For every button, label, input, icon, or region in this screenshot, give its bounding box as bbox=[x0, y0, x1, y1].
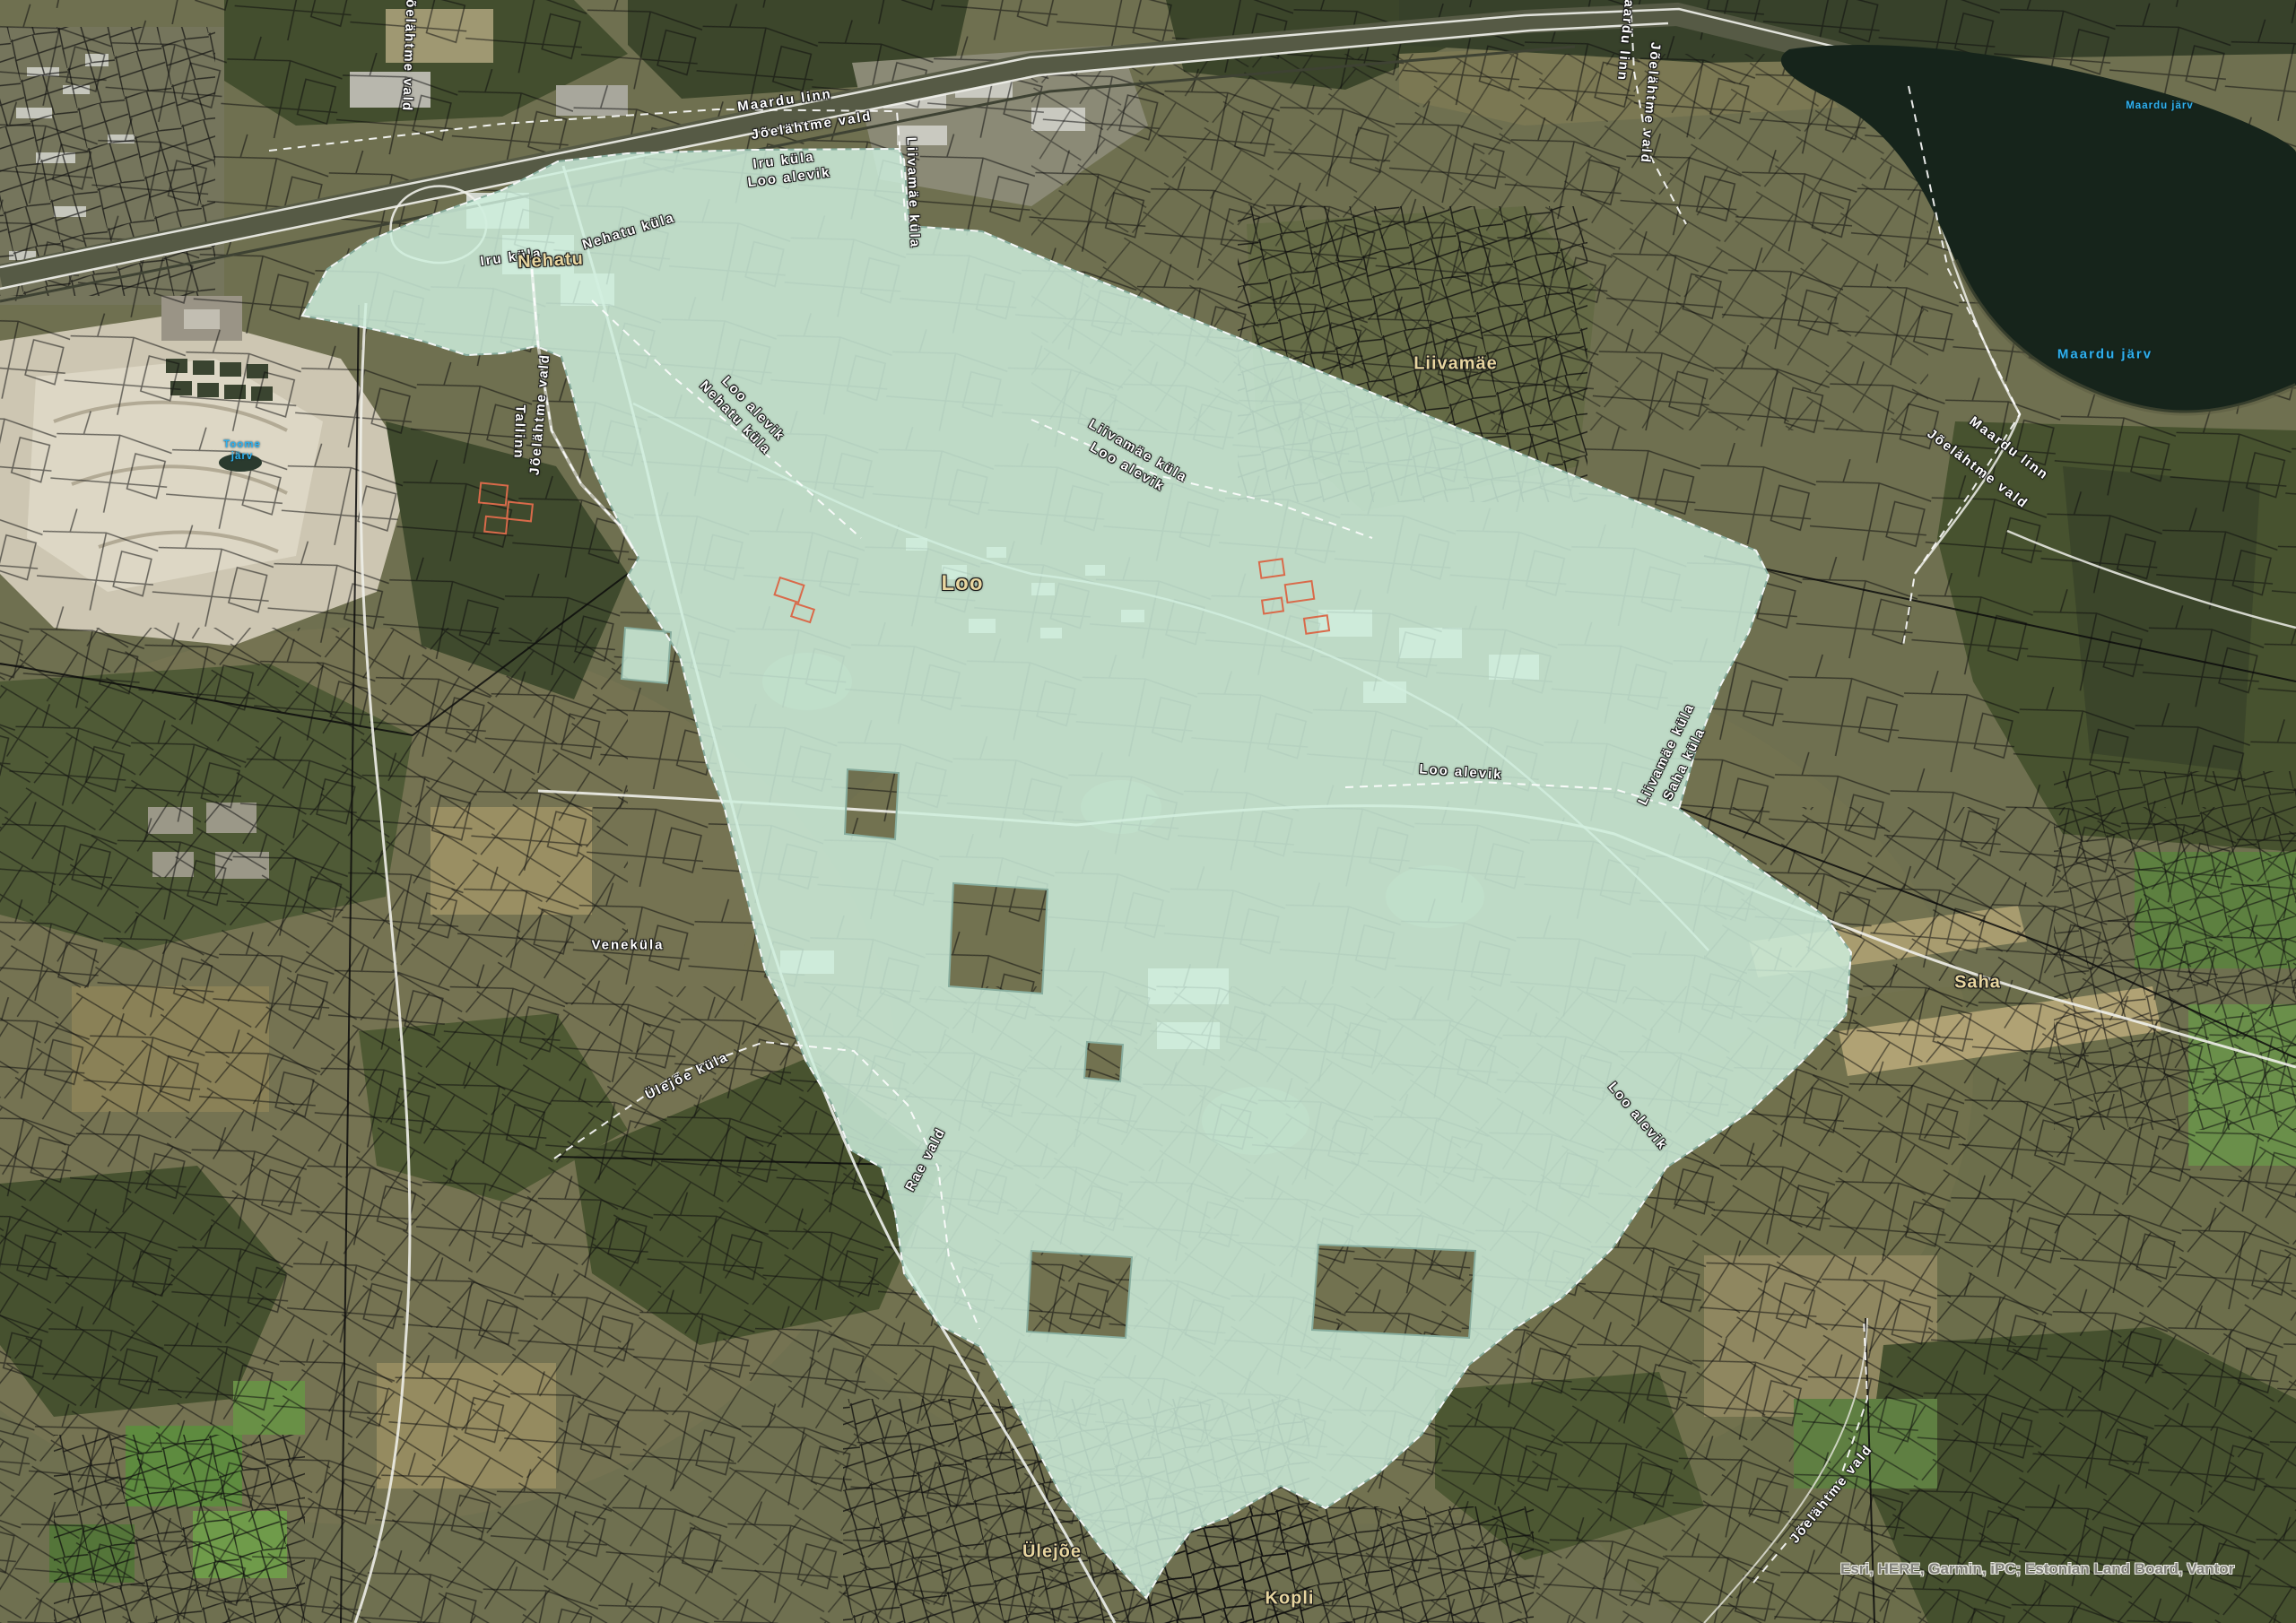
satellite-basemap bbox=[0, 0, 2296, 1623]
map-attribution: Esri, HERE, Garmin, iPC; Estonian Land B… bbox=[1840, 1560, 2234, 1578]
lake-toome bbox=[219, 454, 262, 472]
map-viewport[interactable]: Maardu linnJõelähtme valdIru külaLoo ale… bbox=[0, 0, 2296, 1623]
